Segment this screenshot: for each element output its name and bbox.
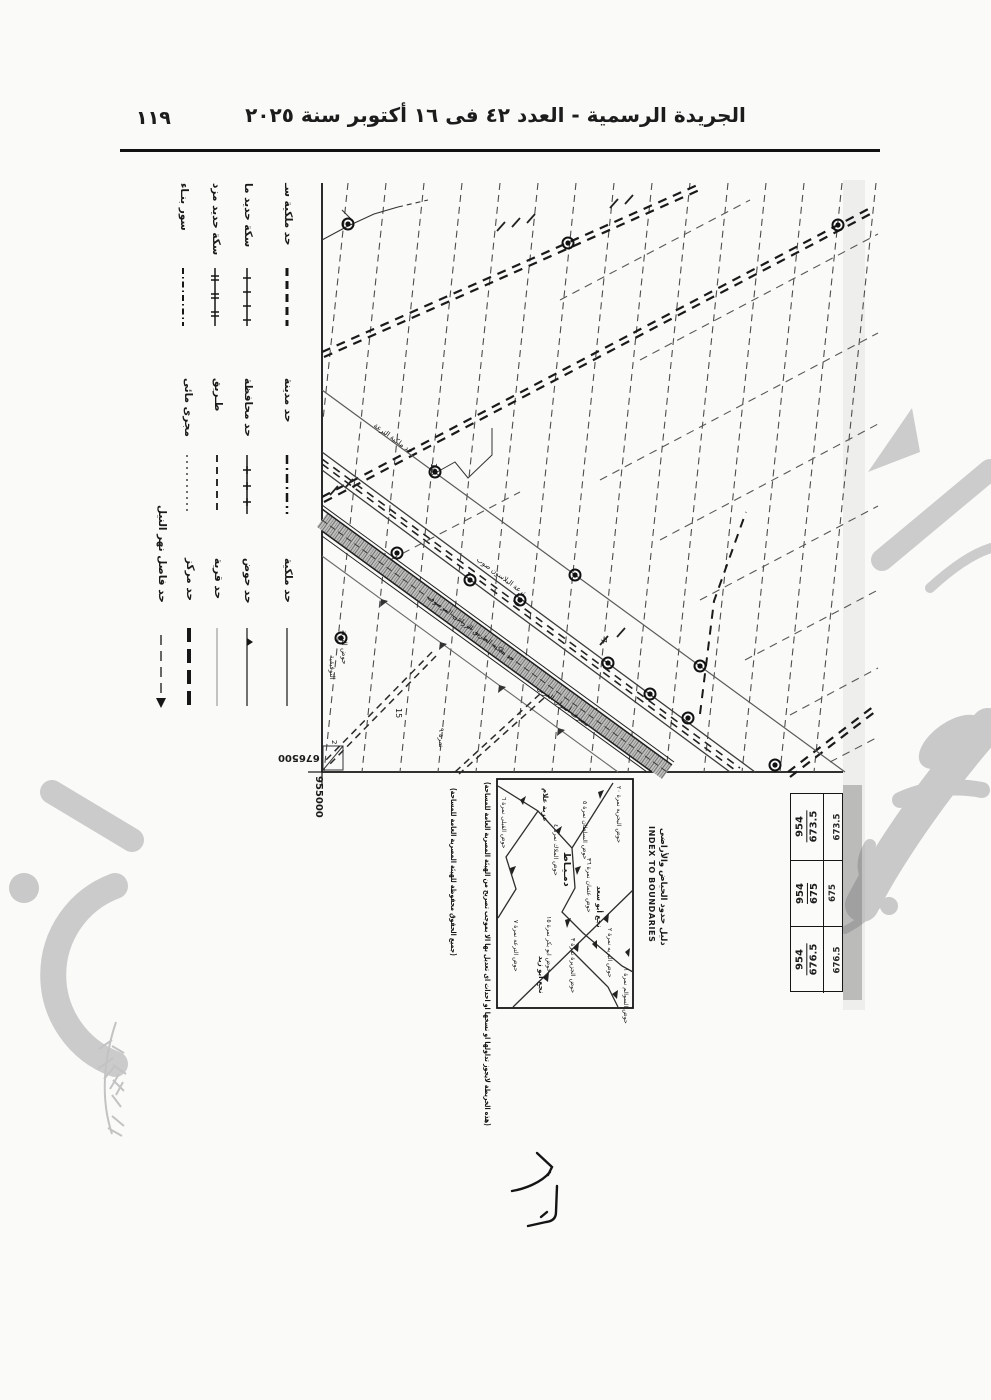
handwritten-mark [512, 1153, 557, 1226]
sheet-edge-cell: 676.5 [824, 927, 851, 993]
hod-label-left-1: حوض البرية [340, 630, 348, 664]
grid-northing-label: 676500 [278, 752, 320, 763]
sheet-edge-cell: 675 [824, 861, 842, 927]
parcel-number-2: 2 [330, 740, 338, 744]
parcel-number-7: 7 [599, 638, 608, 643]
inset-bold-label-0: دمـيـاط [561, 852, 572, 887]
map-copyright-note: (هذه الخريطة لايجوز تداولها او نسخها او … [483, 782, 492, 1126]
symbol-hod-boundary [247, 628, 253, 706]
inset-bold-label-3: نجع أبو زيد [537, 956, 545, 993]
legend-label-markaz-boundary: حد مركز [184, 558, 196, 601]
hod-label-left-2: التوفيقية [328, 655, 336, 680]
parcel-number-9: نمرة ٩ [437, 728, 445, 748]
inset-hod-label-4: حوض عثمان نمرة ٣٦ [585, 858, 592, 913]
inset-bold-label-2: نجع أبو سعد [595, 886, 603, 928]
survey-map-linework: ترعة البلاسون صوب حد ملكية الترعة حد ملك… [0, 0, 991, 1400]
sheet-fraction-cell: 954673.5 [791, 794, 824, 860]
inset-hod-label-6: حوض الترعة نمرة ٧ [512, 920, 519, 972]
inset-hod-label-9: حوض السوالم نمرة ١ [622, 968, 629, 1024]
legend-label-watercourse: مجرى مائى [182, 378, 194, 437]
sheet-row: 954673.5 673.5 [791, 794, 842, 861]
legend-label-railway-single: سكة حديد ما [242, 183, 254, 247]
sheet-edge-cell: 673.5 [824, 794, 851, 860]
legend-label-nile-boundary: حد فاصل نهر النيل [156, 505, 168, 603]
legend-label-village-boundary: حد قرية [212, 558, 224, 599]
legend-label-railway-double: سكة حديد مزد [210, 183, 222, 255]
symbol-nile-boundary [156, 635, 166, 708]
sheet-fraction-cell: 954675 [791, 861, 824, 927]
inset-hod-label-3: حوض الملاك نمرة ٤ [552, 824, 559, 876]
legend-label-property-s: حد ملكية سـ [282, 183, 294, 245]
inset-hod-label-0: حوض القبلى نمرة ٦ [500, 797, 507, 849]
sheet-row: 954676.5 676.5 [791, 927, 842, 993]
grid-edge-label: 676.5 [832, 946, 842, 973]
sheet-number: 954 [794, 816, 806, 837]
symbol-railway-double [211, 268, 219, 326]
parcel-number-10: 10 [429, 463, 438, 473]
inset-bold-label-1: عزبة علام [541, 788, 549, 822]
grid-edge-label: 675 [828, 884, 838, 902]
canal-ownership-label: حد ملكية الترعة [372, 422, 414, 456]
sheet-fraction-cell: 954676.5 [791, 927, 824, 993]
legend-label-governorate-boundary: حد محافظة [242, 378, 254, 437]
map-rights-note: (جميع الحقوق محفوظة للهيئة المصرية العام… [449, 788, 458, 956]
symbol-railway-single [243, 268, 251, 326]
grid-edge-label: 673.5 [832, 813, 842, 840]
sheet-grid-value: 673.5 [806, 811, 820, 843]
survey-markers [336, 219, 844, 771]
sheet-number-table: 954673.5 673.5 954675 675 954676.5 676.5 [790, 793, 843, 992]
sheet-grid-value: 676.5 [806, 944, 820, 976]
inset-hod-label-7: حوض الجزيرة نمرة ٣ [569, 938, 576, 993]
sheet-number: 954 [794, 949, 806, 970]
inset-hod-label-1: حوض السلطان نمرة ٥ [581, 801, 588, 859]
inset-title-english: INDEX TO BOUNDARIES [647, 826, 656, 942]
field-boundary-lines [323, 183, 876, 772]
sheet-row: 954675 675 [791, 861, 842, 928]
sheet-number: 954 [795, 883, 807, 904]
legend-label-hod-boundary: حد حوض [242, 558, 254, 604]
legend-label-wall: سور بنـاء [178, 183, 190, 231]
parcel-number-15: 15 [394, 708, 403, 718]
legend-symbols [156, 268, 287, 708]
legend-label-property-boundary: حد ملكية [282, 558, 294, 603]
symbol-governorate-boundary [243, 455, 251, 514]
inset-hod-label-5: حوض ابو بكر نمرة ١٥ [545, 916, 552, 972]
inset-hod-label-8: حوض البريه نمرة ٢ [606, 928, 613, 978]
legend-label-city-boundary: حد مدينة [282, 378, 294, 422]
legend-label-road: طـريق [212, 378, 224, 411]
lower-roads [326, 652, 544, 774]
gazette-page: الجريدة الرسمية - العدد ٤٢ فى ١٦ أكتوبر … [0, 0, 991, 1400]
grid-easting-label: 955000 [313, 776, 324, 818]
cross-boundary-lines [390, 200, 878, 762]
canal-label: ترعة البلاسون صوب [475, 556, 527, 598]
inset-title-arabic: دليل حدود الحياض والأراضى [658, 828, 668, 946]
sheet-grid-value: 675 [806, 883, 820, 904]
inset-hod-label-2: حوض البحرية نمرة ٢٠ [615, 786, 622, 843]
